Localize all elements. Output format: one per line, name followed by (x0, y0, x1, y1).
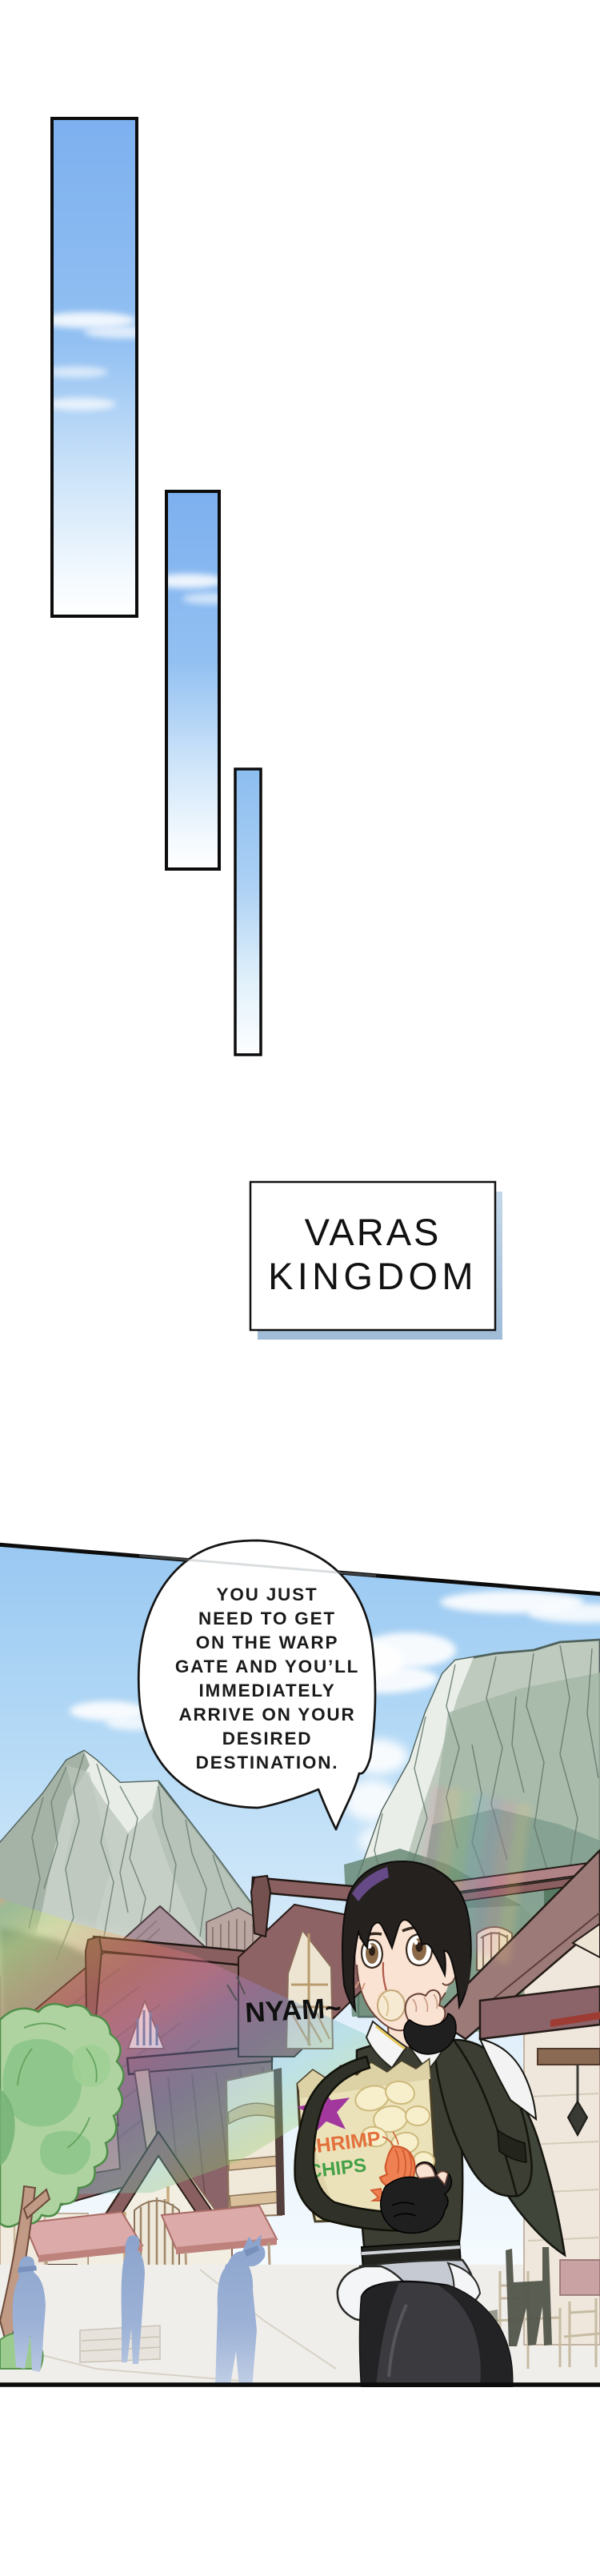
svg-text:ARRIVE ON YOUR: ARRIVE ON YOUR (178, 1705, 355, 1725)
svg-text:NYAM~: NYAM~ (244, 1993, 342, 2029)
svg-text:DESIRED: DESIRED (222, 1729, 313, 1749)
svg-text:IMMEDIATELY: IMMEDIATELY (198, 1681, 335, 1701)
svg-text:KINGDOM: KINGDOM (268, 1255, 478, 1297)
svg-text:ON THE WARP: ON THE WARP (196, 1633, 339, 1653)
svg-text:VARAS: VARAS (305, 1211, 442, 1253)
svg-text:YOU JUST: YOU JUST (217, 1584, 318, 1604)
svg-text:DESTINATION.: DESTINATION. (196, 1753, 339, 1773)
svg-text:NEED TO GET: NEED TO GET (198, 1608, 336, 1629)
svg-text:GATE AND YOU’LL: GATE AND YOU’LL (175, 1657, 359, 1677)
